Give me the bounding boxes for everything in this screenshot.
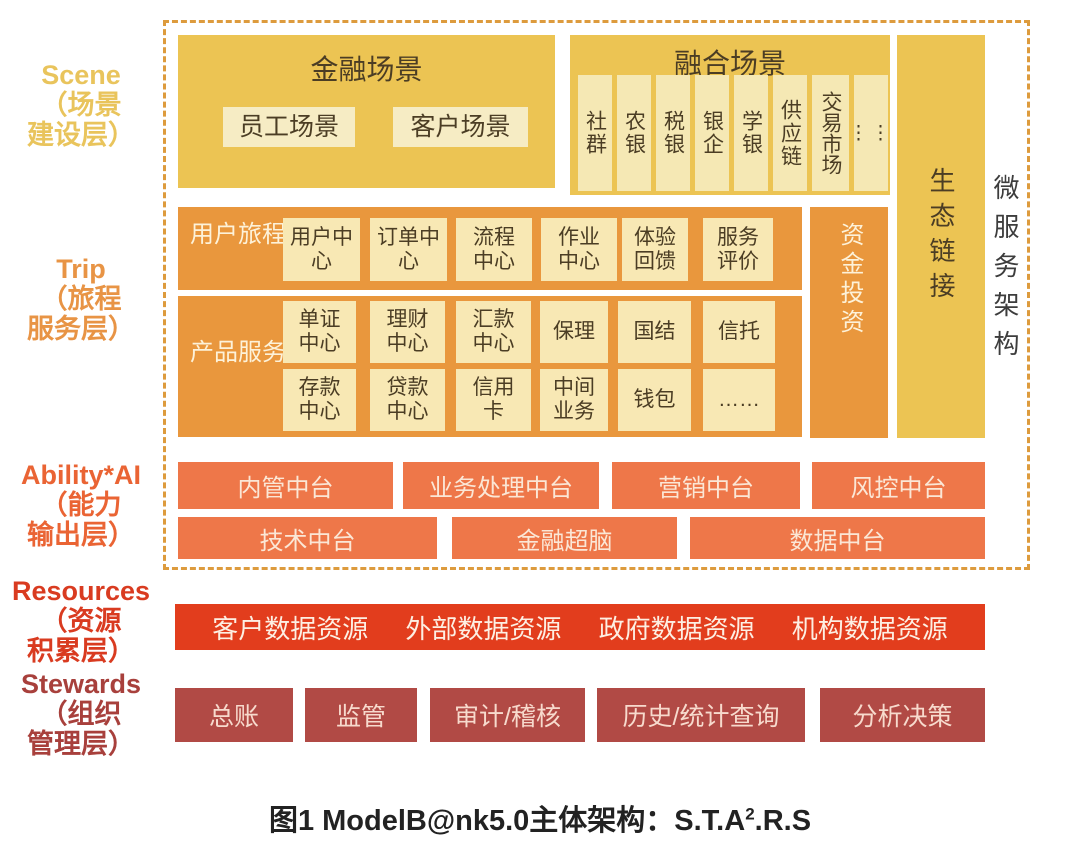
fusion-scene-block: 融合场景 社群 农银 税银 银企 学银 供应链 交易市场 ⋮⋮ [570,35,890,195]
cell-user-center: 用户中心 [283,218,360,281]
cell-edu-bank: 学银 [734,75,768,191]
cell-tax-bank: 税银 [656,75,690,191]
ellipsis-cell: ⋮⋮ [854,75,888,191]
cell-intl-settlement: 国结 [618,301,691,363]
block-finance-superbrain: 金融超脑 [452,517,677,559]
layer-label-scene: Scene （场景 建设层） [0,60,162,150]
resource-government-data: 政府数据资源 [599,609,755,646]
cell-process-center: 流程中心 [456,218,532,281]
cell-wallet: 钱包 [618,369,691,431]
product-service-band: 产品服务 单证中心 理财中心 汇款中心 保理 国结 信托 存款中心 贷款中心 信… [178,296,802,437]
capital-investment-label: 资金投资 [837,222,861,338]
user-journey-band: 用户旅程 用户中心 订单中心 流程中心 作业中心 体验回馈 服务评价 [178,207,802,290]
block-history-stat-query: 历史/统计查询 [597,688,805,742]
architecture-diagram: Scene （场景 建设层） Trip （旅程 服务层） Ability*AI … [0,0,1080,863]
cell-credit-card: 信用卡 [456,369,531,431]
figure-caption: 图1 ModelB@nk5.0主体架构：S.T.A2.R.S [0,797,1080,839]
microservice-architecture-label: 微服务架构 [992,174,1018,389]
block-internal-mgmt-platform: 内管中台 [178,462,393,509]
cell-ellipsis-more: …… [703,369,775,431]
cell-community: 社群 [578,75,612,191]
cell-loan-center: 贷款中心 [370,369,445,431]
layer-label-resources: Resources （资源 积累层） [0,576,162,666]
resource-institution-data: 机构数据资源 [792,609,948,646]
caption-suffix: .R.S [755,805,811,837]
cell-order-center: 订单中心 [370,218,447,281]
cell-factoring: 保理 [540,301,608,363]
layer-label-trip: Trip （旅程 服务层） [0,254,162,344]
cell-deposit-center: 存款中心 [283,369,356,431]
cell-intermediary-business: 中间业务 [540,369,608,431]
resource-customer-data: 客户数据资源 [212,609,368,646]
cell-experience-feedback: 体验回馈 [622,218,688,281]
cell-document-center: 单证中心 [283,301,356,363]
block-audit-check: 审计/稽核 [430,688,585,742]
finance-scene-block: 金融场景 员工场景 客户场景 [178,35,555,188]
block-analysis-decision: 分析决策 [820,688,985,742]
block-data-platform: 数据中台 [690,517,985,559]
resource-external-data: 外部数据资源 [405,609,561,646]
cell-agri-bank: 农银 [617,75,651,191]
data-resources-bar: 客户数据资源 外部数据资源 政府数据资源 机构数据资源 [175,604,985,650]
block-risk-control-platform: 风控中台 [812,462,985,509]
cell-remittance-center: 汇款中心 [456,301,531,363]
eco-link-label: 生态链接 [928,167,954,307]
cell-trust: 信托 [703,301,775,363]
caption-prefix: 图1 ModelB@nk5.0主体架构：S.T.A [269,805,745,837]
caption-superscript: 2 [745,804,754,823]
cell-trading-market: 交易市场 [812,75,849,191]
layer-label-stewards: Stewards （组织 管理层） [0,669,162,759]
user-journey-label: 用户旅程 [188,221,288,249]
cell-operation-center: 作业中心 [541,218,617,281]
layer-label-ability: Ability*AI （能力 输出层） [0,460,162,550]
eco-link-block: 生态链接 [897,35,985,438]
block-tech-platform: 技术中台 [178,517,437,559]
cell-service-rating: 服务评价 [703,218,773,281]
product-service-label: 产品服务 [188,339,288,367]
cell-customer-scene: 客户场景 [393,107,528,147]
cell-supply-chain: 供应链 [773,75,807,191]
block-marketing-platform: 营销中台 [612,462,800,509]
cell-employee-scene: 员工场景 [223,107,355,147]
cell-wealth-center: 理财中心 [370,301,445,363]
block-supervision: 监管 [305,688,417,742]
block-business-process-platform: 业务处理中台 [403,462,599,509]
finance-scene-title: 金融场景 [178,48,555,88]
block-general-ledger: 总账 [175,688,293,742]
capital-investment-block: 资金投资 [810,207,888,438]
cell-bank-enterprise: 银企 [695,75,729,191]
